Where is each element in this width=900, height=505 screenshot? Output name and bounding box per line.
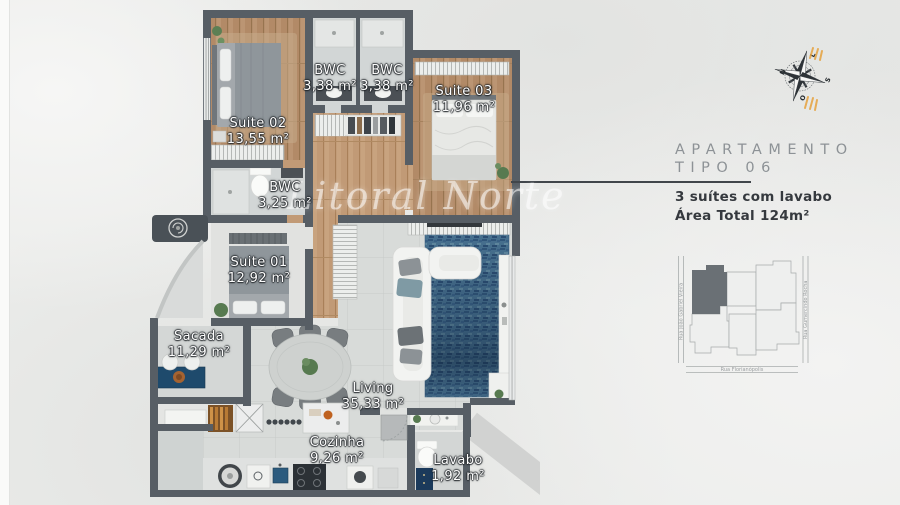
window <box>204 38 210 120</box>
planter-bench <box>165 410 206 425</box>
room-area: 35,33 m² <box>342 397 404 413</box>
page-edge <box>0 0 10 505</box>
compass-rose-icon: N L S O <box>756 26 844 114</box>
room-label-bwc2: BWC 3,38 m² <box>360 63 414 94</box>
hall-closet <box>333 225 357 299</box>
door-gap <box>372 105 388 113</box>
apartment-title-line2: TIPO 06 <box>675 160 777 176</box>
room-name: Suite 01 <box>228 255 290 271</box>
room-name: BWC <box>360 63 414 79</box>
room-area: 3,38 m² <box>303 79 357 95</box>
living-furniture <box>393 235 511 400</box>
street-left-label: Rua João Gabriel Vieira <box>679 283 685 340</box>
vanity <box>281 168 303 178</box>
wardrobe <box>415 62 509 75</box>
plant-icon <box>413 415 421 423</box>
building-footprint <box>690 261 799 355</box>
room-name: BWC <box>303 63 357 79</box>
street-right-label: Rua Gumercindo Rocha <box>803 281 809 339</box>
door-gap <box>283 160 305 168</box>
room-label-cozinha: Cozinha 9,26 m² <box>310 435 365 466</box>
apartment-title-line1: APARTAMENTO <box>675 142 854 158</box>
feature-text: 3 suítes com lavabo <box>675 189 832 205</box>
room-label-suite03: Suite 03 11,96 m² <box>433 84 495 115</box>
bed-bench <box>229 233 287 244</box>
hall-wardrobe <box>315 115 401 136</box>
stove-icon <box>293 464 326 490</box>
door-gap <box>325 105 341 113</box>
room-area: 12,92 m² <box>228 271 290 287</box>
room-label-lavabo: Lavabo 1,92 m² <box>431 453 485 484</box>
room-name: BWC <box>258 180 312 196</box>
room-area: 11,29 m² <box>168 345 230 361</box>
compass-north-label: N <box>778 68 788 76</box>
room-area: 3,38 m² <box>360 79 414 95</box>
room-area: 13,55 m² <box>227 132 289 148</box>
room-name: Cozinha <box>310 435 365 451</box>
room-label-sacada: Sacada 11,29 m² <box>168 329 230 360</box>
room-name: Sacada <box>168 329 230 345</box>
floor-balcony-curve <box>157 241 203 318</box>
room-area: 3,25 m² <box>258 196 312 212</box>
sink-icon <box>273 468 288 483</box>
kitchen-counter <box>203 458 407 490</box>
plant-icon <box>214 303 228 317</box>
door-gap <box>287 215 303 223</box>
plant-icon <box>495 390 504 399</box>
street-bottom-label: Rua Florianópolis <box>721 366 764 373</box>
door-gap <box>305 227 313 249</box>
room-name: Suite 03 <box>433 84 495 100</box>
floor-service <box>157 430 203 490</box>
room-area: 9,26 m² <box>310 451 365 467</box>
room-label-bwc3: BWC 3,25 m² <box>258 180 312 211</box>
room-label-living: Living 35,33 m² <box>342 381 404 412</box>
room-label-suite02: Suite 02 13,55 m² <box>227 116 289 147</box>
entry-door-leaf <box>381 415 407 440</box>
total-area-text: Área Total 124m² <box>675 208 810 224</box>
wardrobe <box>210 145 284 160</box>
title-divider-line <box>511 181 751 183</box>
room-label-suite01: Suite 01 12,92 m² <box>228 255 290 286</box>
room-area: 1,92 m² <box>431 469 485 485</box>
dining-set <box>269 325 351 410</box>
room-label-bwc1: BWC 3,38 m² <box>303 63 357 94</box>
room-name: Suite 02 <box>227 116 289 132</box>
site-location-map: Rua João Gabriel Vieira Rua Gumercindo R… <box>660 253 818 379</box>
room-name: Living <box>342 381 404 397</box>
plant-icon <box>212 26 222 36</box>
room-name: Lavabo <box>431 453 485 469</box>
room-area: 11,96 m² <box>433 100 495 116</box>
